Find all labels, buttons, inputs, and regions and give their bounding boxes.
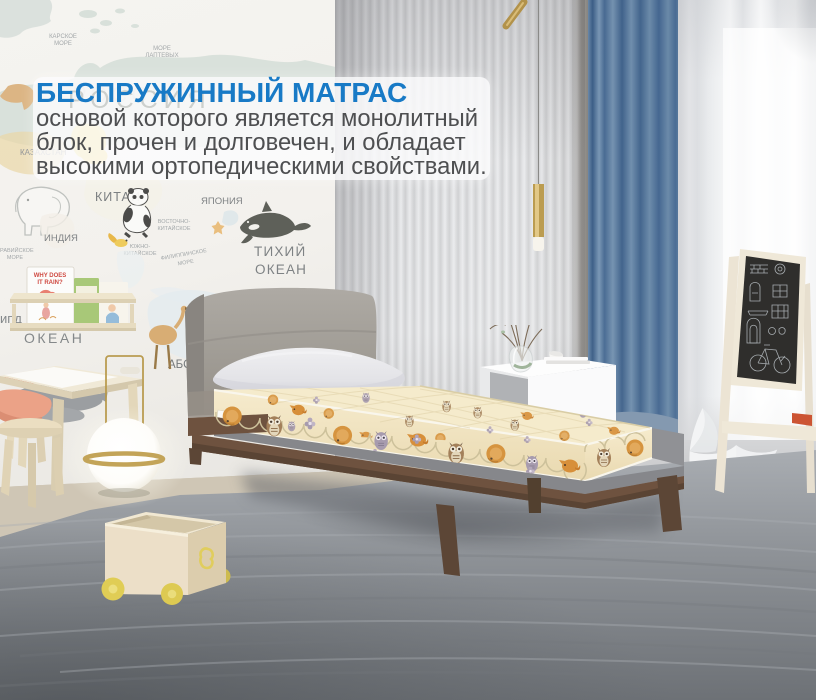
svg-text:ИНДИЯ: ИНДИЯ (44, 233, 78, 244)
svg-text:АРАВИЙСКОЕ: АРАВИЙСКОЕ (0, 246, 34, 254)
svg-text:ЯПОНИЯ: ЯПОНИЯ (201, 196, 243, 207)
svg-text:WHY DOES: WHY DOES (34, 273, 67, 279)
svg-text:КАРСКОЕ: КАРСКОЕ (49, 34, 77, 40)
svg-text:МОРЕ: МОРЕ (54, 41, 72, 47)
svg-text:ЮЖНО-: ЮЖНО- (130, 244, 151, 250)
svg-text:МОРЕ: МОРЕ (7, 255, 24, 261)
svg-text:ВОСТОЧНО-: ВОСТОЧНО- (158, 219, 191, 225)
svg-text:МОРЕ: МОРЕ (177, 259, 194, 268)
svg-text:КИТАЙСКОЕ: КИТАЙСКОЕ (157, 224, 190, 232)
svg-text:IT RAIN?: IT RAIN? (37, 280, 63, 286)
svg-text:ЛАПТЕВЫХ: ЛАПТЕВЫХ (145, 53, 178, 59)
svg-text:ТИХИЙ: ТИХИЙ (254, 244, 306, 259)
svg-text:МОРЕ: МОРЕ (153, 46, 171, 52)
svg-text:ОКЕАН: ОКЕАН (255, 262, 307, 277)
